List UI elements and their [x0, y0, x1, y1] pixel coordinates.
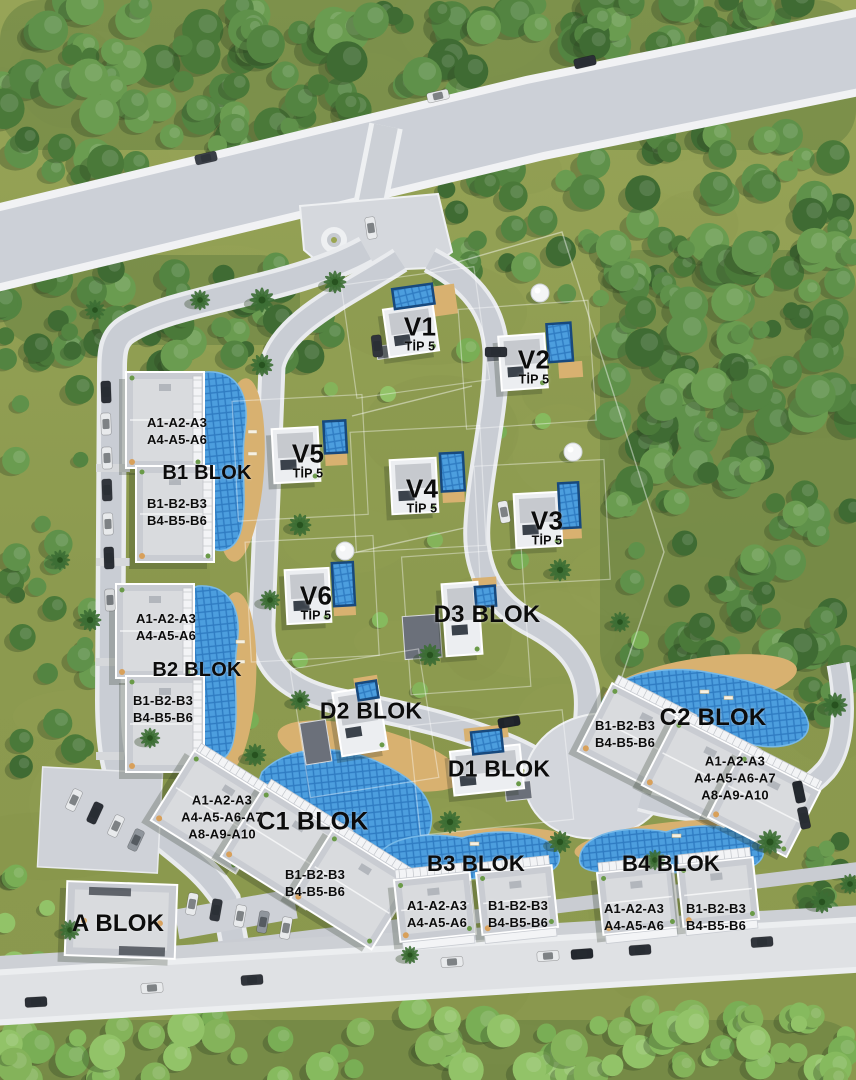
site-plan: V1 TİP 5 V2 TİP 5 V5 TİP 5 V4 TİP 5 V3 T…: [0, 0, 856, 1080]
site-plan-render: [0, 0, 856, 1080]
